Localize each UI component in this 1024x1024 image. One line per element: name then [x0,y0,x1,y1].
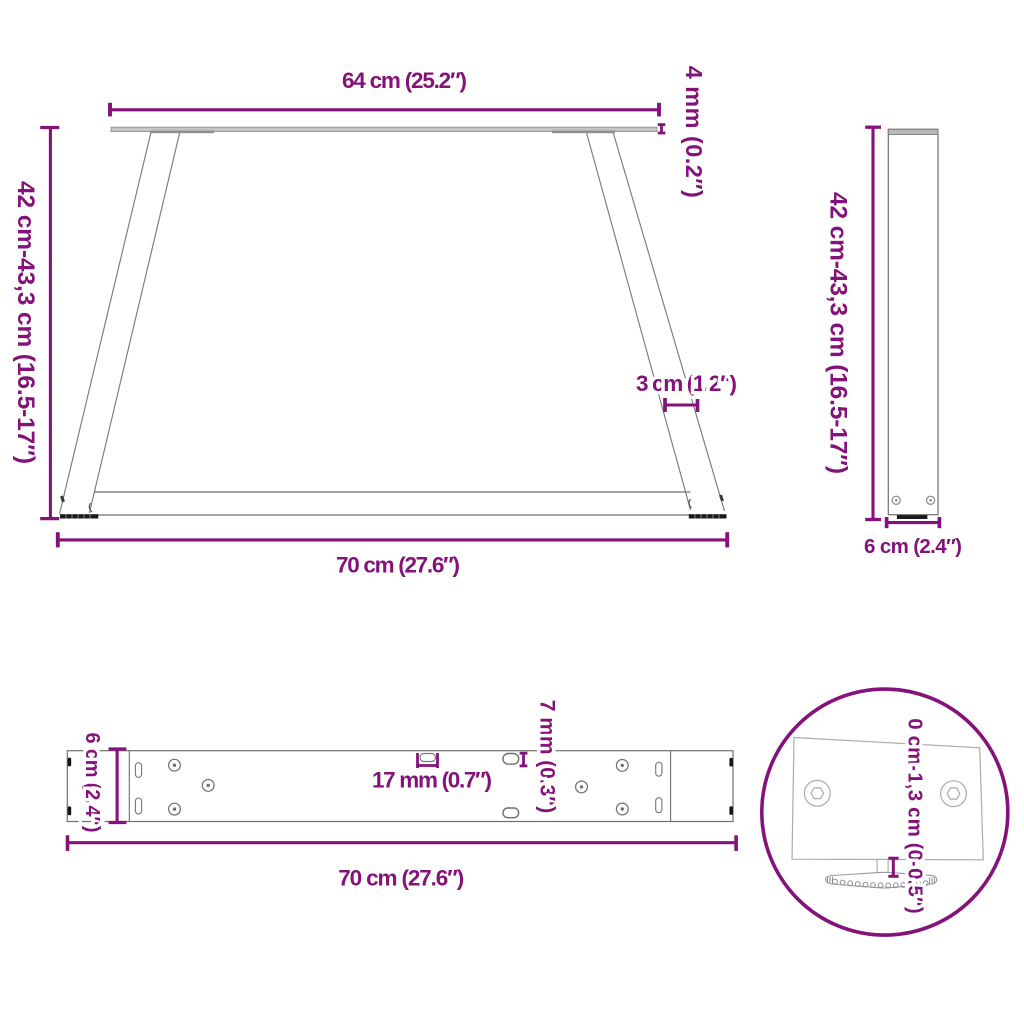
svg-text:0 cm-1,3 cm (0-0.5″): 0 cm-1,3 cm (0-0.5″) [903,718,926,914]
svg-text:4 mm (0.2″): 4 mm (0.2″) [681,66,707,198]
svg-text:6 cm (2.4″): 6 cm (2.4″) [81,733,103,833]
svg-text:42 cm-43,3 cm (16.5-17″): 42 cm-43,3 cm (16.5-17″) [12,181,39,464]
svg-text:70 cm (27.6″): 70 cm (27.6″) [336,553,460,578]
svg-text:7 mm (0.3″): 7 mm (0.3″) [536,700,559,814]
svg-text:17 mm (0.7″): 17 mm (0.7″) [372,767,492,792]
svg-text:70 cm (27.6″): 70 cm (27.6″) [338,865,464,890]
svg-text:64 cm (25.2″): 64 cm (25.2″) [342,68,467,93]
svg-text:3 cm (1.2″): 3 cm (1.2″) [636,371,737,396]
svg-text:42 cm-43,3 cm (16.5-17″): 42 cm-43,3 cm (16.5-17″) [825,192,852,474]
svg-text:6 cm (2.4″): 6 cm (2.4″) [864,535,962,558]
